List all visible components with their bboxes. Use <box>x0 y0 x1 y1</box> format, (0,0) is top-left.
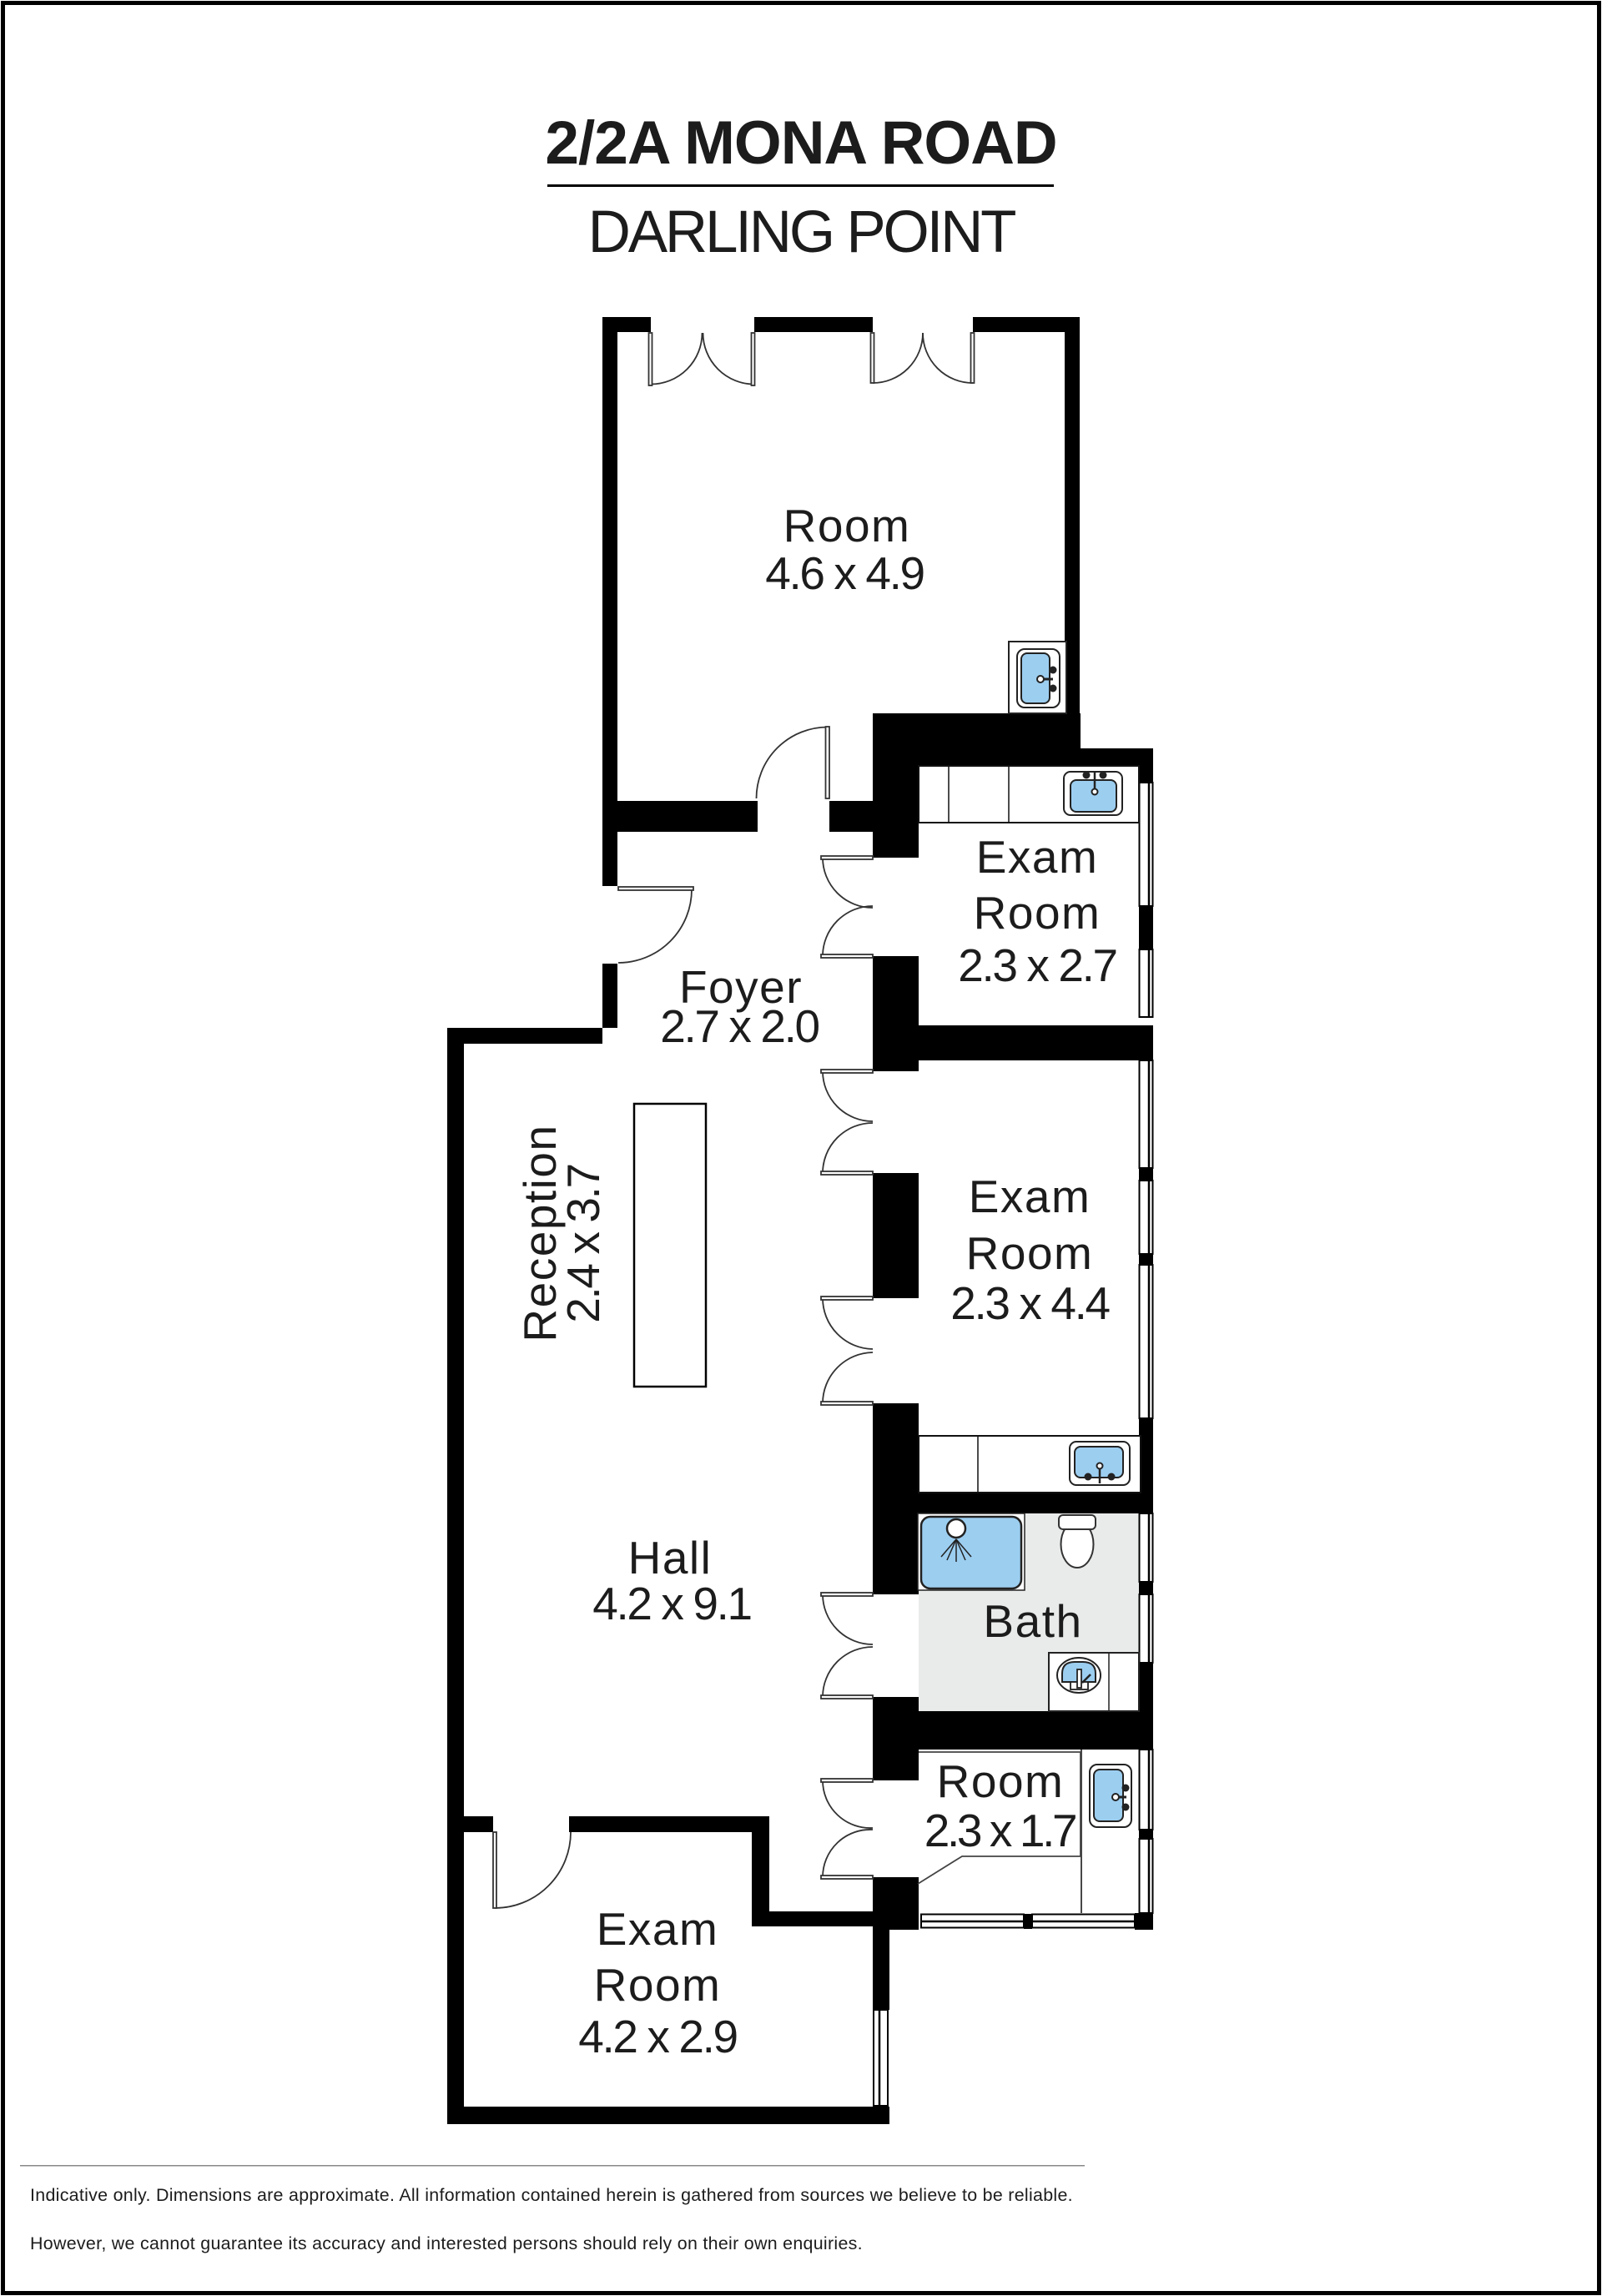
svg-text:Room: Room <box>937 1755 1065 1807</box>
svg-text:Room: Room <box>783 500 911 551</box>
svg-text:2/2A MONA ROAD: 2/2A MONA ROAD <box>545 109 1056 177</box>
svg-text:4.2 x 9.1: 4.2 x 9.1 <box>592 1578 750 1629</box>
svg-text:2.3 x 2.7: 2.3 x 2.7 <box>958 939 1116 991</box>
svg-text:Bath: Bath <box>983 1595 1082 1647</box>
svg-text:Exam: Exam <box>597 1903 719 1955</box>
svg-text:Indicative only. Dimensions ar: Indicative only. Dimensions are approxim… <box>30 2185 1073 2205</box>
svg-text:2.3 x 1.7: 2.3 x 1.7 <box>924 1805 1076 1856</box>
svg-text:4.2 x 2.9: 4.2 x 2.9 <box>578 2011 736 2062</box>
svg-text:4.6 x 4.9: 4.6 x 4.9 <box>765 547 923 599</box>
svg-text:However, we cannot guarantee i: However, we cannot guarantee its accurac… <box>30 2233 863 2253</box>
svg-text:Room: Room <box>966 1227 1094 1279</box>
svg-text:Exam: Exam <box>976 831 1099 883</box>
svg-text:2.3 x 4.4: 2.3 x 4.4 <box>950 1277 1109 1329</box>
svg-text:Room: Room <box>974 887 1101 939</box>
svg-text:2.4 x 3.7: 2.4 x 3.7 <box>557 1165 609 1322</box>
svg-text:2.7 x 2.0: 2.7 x 2.0 <box>660 1000 819 1052</box>
svg-text:DARLING POINT: DARLING POINT <box>588 199 1016 265</box>
svg-text:Hall: Hall <box>628 1532 713 1584</box>
svg-text:Exam: Exam <box>969 1171 1091 1222</box>
svg-text:Room: Room <box>594 1959 722 2011</box>
